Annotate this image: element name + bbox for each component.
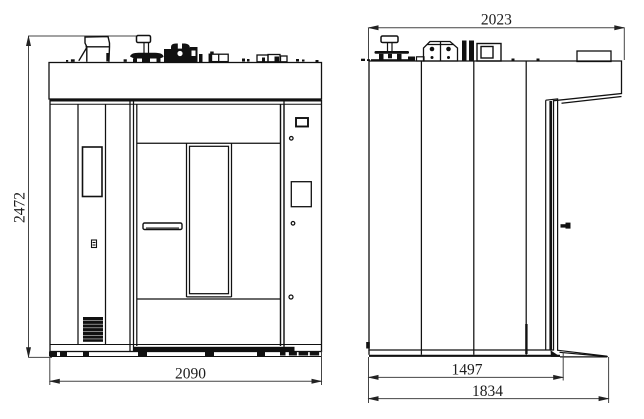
svg-text:1497: 1497 (452, 362, 483, 379)
svg-text:2023: 2023 (481, 12, 512, 29)
svg-text:1834: 1834 (472, 383, 503, 400)
svg-text:2090: 2090 (175, 366, 206, 383)
svg-text:2472: 2472 (12, 192, 29, 223)
